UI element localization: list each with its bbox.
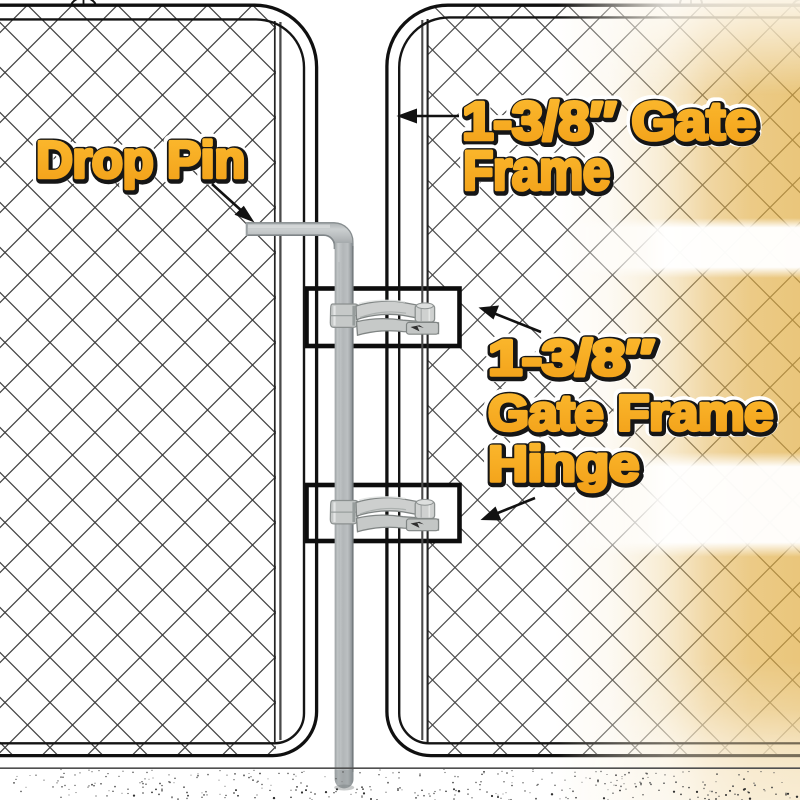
svg-text:Hinge: Hinge bbox=[488, 436, 639, 492]
svg-text:Frame: Frame bbox=[463, 139, 610, 202]
svg-text:Gate Frame: Gate Frame bbox=[488, 385, 773, 441]
svg-text:1-3/8″: 1-3/8″ bbox=[488, 330, 655, 386]
svg-text:Drop Pin: Drop Pin bbox=[36, 132, 245, 190]
